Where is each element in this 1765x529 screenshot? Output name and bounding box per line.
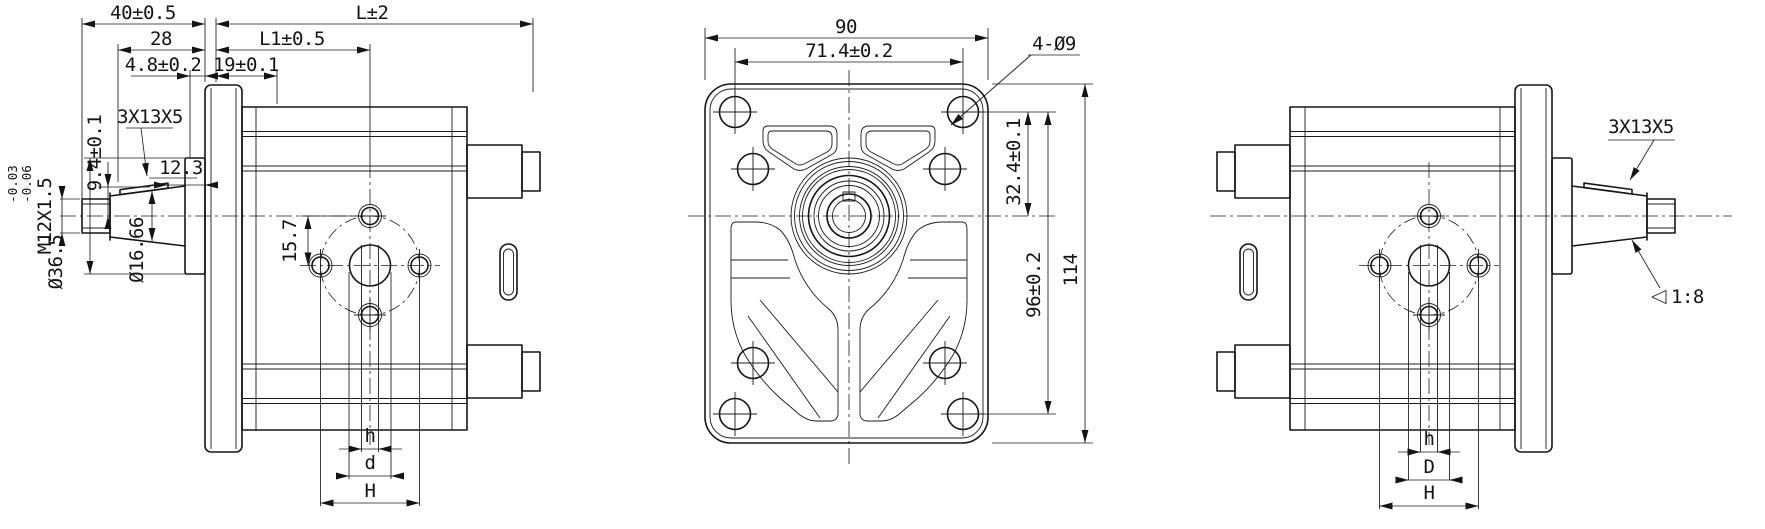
key-spec-label-right: 3X13X5 [1608, 116, 1674, 138]
flange-outline [705, 84, 988, 443]
dim-114: 114 [1060, 254, 1082, 287]
corner-hole [713, 392, 757, 436]
dim-4-holes: 4-Ø9 [1032, 33, 1076, 55]
right-side-view: 3X13X5 1:8 h D H [1210, 85, 1732, 509]
bolt-hole [1467, 249, 1490, 282]
dim-d-left: d [365, 452, 376, 474]
mounting-flange [205, 85, 242, 452]
lower-web-right [860, 222, 967, 421]
dim-h-left: h [365, 425, 376, 447]
key-spec-label: 3X13X5 [117, 106, 183, 128]
dim-96: 96±0.2 [1023, 252, 1045, 318]
dim-28: 28 [150, 28, 172, 50]
mid-hole [923, 147, 967, 191]
pump-body-right [1290, 107, 1515, 430]
dim-D-right: D [1424, 456, 1435, 478]
left-side-view: 40±0.5 L±2 28 L1±0.5 4.8±0.2 19±0.1 3X13… [5, 2, 540, 506]
bolt-hole [354, 299, 386, 331]
pilot-tol-lower: -0.06 [19, 165, 34, 203]
bolt-hole [1413, 299, 1445, 331]
dim-12-3: 12.3 [159, 157, 203, 179]
right-view-dimensions: 3X13X5 1:8 h D H [1380, 116, 1704, 509]
dim-L1: L1±0.5 [259, 28, 325, 50]
side-boss-lens [500, 244, 517, 300]
mounting-flange-right [1515, 85, 1552, 452]
mid-hole [731, 341, 775, 385]
dim-19: 19±0.1 [213, 54, 279, 76]
dim-40: 40±0.5 [110, 2, 176, 24]
bolt-hole [309, 249, 332, 282]
dim-90: 90 [835, 16, 857, 38]
dim-pilot-dia: Ø36.5 [45, 235, 67, 290]
bolt-hole [1413, 205, 1445, 228]
bolt-hole [408, 249, 431, 282]
taper-ratio-label: 1:8 [1671, 286, 1704, 308]
upper-web-right [861, 126, 935, 171]
port-bosses [467, 145, 540, 398]
shaft-key [1584, 183, 1632, 194]
side-boss-lens [1240, 244, 1257, 300]
dim-32-4: 32.4±0.1 [1003, 118, 1025, 206]
dim-9-4: 9.4±0.1 [84, 115, 106, 192]
mid-hole [731, 147, 775, 191]
pilot-tol-upper: -0.03 [5, 165, 20, 203]
front-view-dimensions: 90 71.4±0.2 4-Ø9 32.4±0.1 96±0.2 114 [705, 16, 1093, 443]
front-flange-view: 90 71.4±0.2 4-Ø9 32.4±0.1 96±0.2 114 [688, 16, 1093, 468]
pump-body [242, 107, 467, 430]
dim-71-4: 71.4±0.2 [805, 40, 893, 62]
upper-web-left [763, 126, 837, 171]
mid-hole [923, 341, 967, 385]
bolt-pattern-face-right [1359, 162, 1499, 452]
bolt-pattern-face [300, 162, 440, 452]
dim-H-right: H [1424, 482, 1435, 504]
bolt-hole [354, 205, 386, 228]
dim-taper-dia: Ø16.66 [126, 217, 148, 283]
dim-4-8: 4.8±0.2 [125, 54, 202, 76]
lower-web-left [731, 222, 838, 421]
corner-hole [713, 90, 757, 134]
bolt-hole [1368, 249, 1391, 282]
dim-L: L±2 [356, 2, 389, 24]
drawing-canvas: 40±0.5 L±2 28 L1±0.5 4.8±0.2 19±0.1 3X13… [0, 0, 1765, 529]
taper-symbol [1652, 291, 1666, 304]
port-bosses-right [1217, 145, 1290, 398]
dim-15-7: 15.7 [279, 219, 301, 263]
dim-h-right: h [1424, 428, 1435, 450]
dim-H-left: H [365, 480, 376, 502]
pump-drawing: 40±0.5 L±2 28 L1±0.5 4.8±0.2 19±0.1 3X13… [0, 0, 1765, 529]
shaft-right [1572, 183, 1675, 246]
